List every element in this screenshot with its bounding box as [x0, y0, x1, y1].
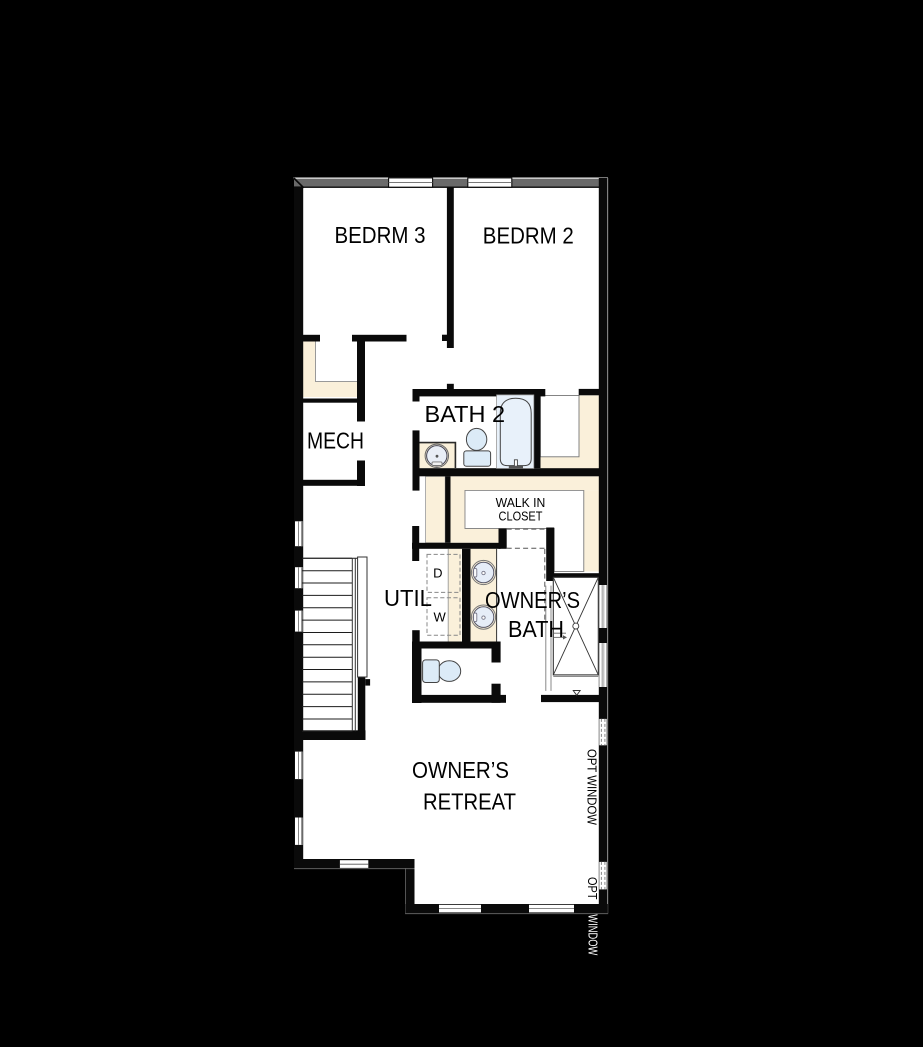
svg-text:OPT: OPT: [585, 877, 599, 900]
svg-text:UTIL: UTIL: [384, 585, 432, 611]
svg-text:BEDRM 2: BEDRM 2: [483, 222, 574, 248]
svg-text:WALK IN: WALK IN: [496, 496, 546, 510]
svg-text:CLOSET: CLOSET: [499, 510, 543, 524]
svg-text:BATH 2: BATH 2: [425, 401, 506, 427]
svg-text:BEDRM 3: BEDRM 3: [335, 222, 426, 248]
svg-text:OWNER’S: OWNER’S: [412, 757, 509, 783]
svg-text:BATH: BATH: [508, 616, 564, 642]
svg-text:OPT WINDOW: OPT WINDOW: [585, 749, 599, 825]
svg-text:OWNER’S: OWNER’S: [485, 587, 580, 613]
svg-text:D: D: [433, 566, 442, 581]
svg-text:MECH: MECH: [307, 427, 364, 453]
svg-text:RETREAT: RETREAT: [423, 789, 516, 815]
svg-text:W: W: [434, 609, 447, 624]
svg-text:WINDOW: WINDOW: [586, 914, 600, 955]
